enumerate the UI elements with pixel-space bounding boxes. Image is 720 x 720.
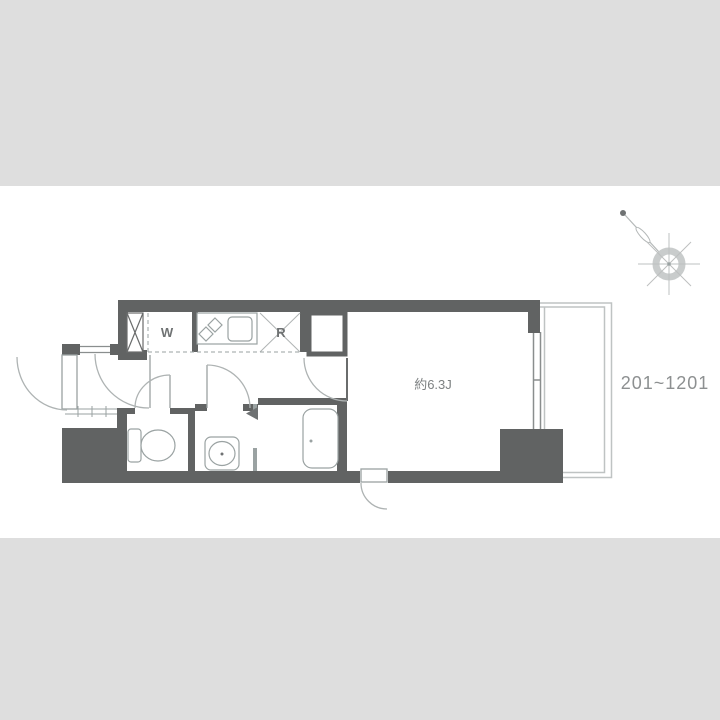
floor-plan-page: W R 約6.3J 201~1201 [0, 0, 720, 720]
toilet-fixture [128, 429, 175, 462]
unit-numbers-label: 201~1201 [621, 373, 710, 393]
refrigerator-space-label: R [276, 325, 286, 340]
kitchen-counter [197, 313, 257, 344]
bottom-gray-band [0, 538, 720, 720]
washbasin-fixture [205, 437, 239, 470]
floor-plan-svg: W R 約6.3J 201~1201 [0, 0, 720, 720]
main-room-size-label: 約6.3J [414, 377, 452, 392]
top-gray-band [0, 0, 720, 186]
entrance-door [17, 355, 77, 410]
washroom-door [207, 365, 250, 408]
compass-needle-dot [620, 210, 626, 216]
closet-x [127, 313, 143, 352]
main-room-door [304, 358, 347, 401]
bathtub-fixture [303, 409, 338, 468]
compass-icon [620, 210, 700, 295]
fixtures [128, 409, 338, 470]
entrance-door-arc [17, 357, 67, 410]
kitchen-sink-icon [228, 317, 252, 341]
window-genkan [79, 347, 111, 353]
main-room-south-door [361, 469, 387, 509]
shoe-closet [309, 313, 345, 354]
bathroom-divider [246, 404, 258, 471]
washer-space-label: W [161, 325, 174, 340]
window-right [533, 332, 541, 430]
toilet-door [135, 375, 170, 408]
washer-space-door [95, 354, 150, 408]
